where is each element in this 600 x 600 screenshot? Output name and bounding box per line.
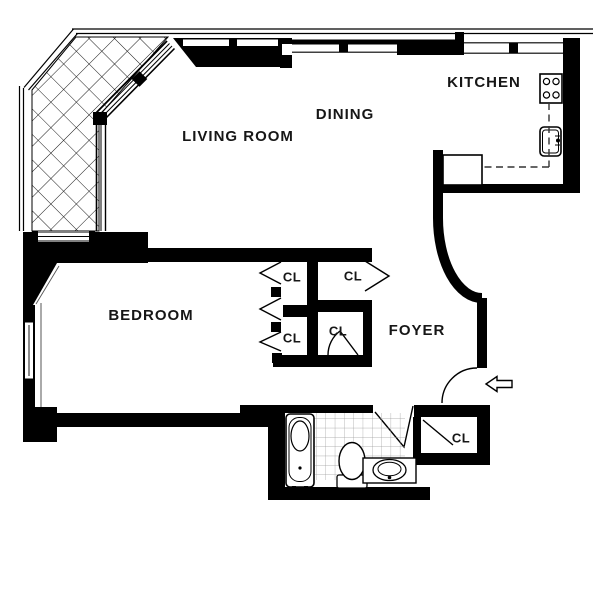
closet-door-leaf [423,420,453,445]
window-mullion-block [32,231,38,242]
closet-label: CL [452,430,470,445]
living-room-label: LIVING ROOM [182,128,294,145]
wall-foyer-curve [438,218,482,298]
window-mullion-block [89,231,95,242]
door-anchor-block [272,353,282,363]
kitchen-sink-icon [540,127,561,156]
wall-window-head [292,40,463,45]
kitchen-label: KITCHEN [447,74,521,91]
wall-bedroom-top [148,248,372,262]
door-anchor-block [271,322,281,332]
wall-bedroom-chamfer [23,263,57,305]
stove-icon [540,74,562,103]
floor-plan-canvas: LIVING ROOM DINING KITCHEN BEDROOM FOYER… [0,0,600,600]
wall-bath-left [268,405,285,500]
wall-right-kitchen [563,38,580,193]
window-slot [237,40,278,47]
closet-label: CL [329,323,347,338]
counter-dashed-outline [482,103,549,167]
wall-kitchen-left [433,150,443,218]
wall-top-left-end [282,38,292,44]
window-slot [183,40,229,47]
wall-stub [280,55,292,68]
wall-closet-mid-left [283,305,307,317]
terrace [32,37,175,231]
bifold-door-icon [260,262,281,284]
bathtub-icon [286,414,314,489]
wall-connector [240,405,270,427]
bifold-door-icon [260,298,281,320]
window-mullion-block [339,40,348,53]
entry-door-arc [442,368,477,403]
closet-label: CL [344,268,362,283]
refrigerator-counter-icon [443,155,482,185]
window-mullion-block [509,43,518,54]
wall-bath-top [285,405,373,413]
wall-block [455,32,464,55]
wall-closet-right [363,312,372,355]
wall-closet-bottom [273,355,372,367]
wall-bedroom-bottom [23,413,270,427]
bathroom-fixtures [286,413,416,489]
dining-label: DINING [316,106,375,123]
vanity-sink-icon [363,458,416,483]
bifold-door-icon [365,261,389,291]
wall-top-dining [397,44,455,55]
window-mullion-block [24,379,34,385]
floor-plan: LIVING ROOM DINING KITCHEN BEDROOM FOYER… [0,0,600,600]
bifold-door-icon [260,332,281,351]
closet-label: CL [283,330,301,345]
closet-label: CL [283,269,301,284]
entry-arrow-icon [486,377,512,392]
window-mullion-block [24,316,34,322]
foyer-label: FOYER [389,322,446,339]
wall-closet-spine [307,253,318,362]
wall-closet-mid-right [318,300,372,312]
bedroom-label: BEDROOM [108,307,193,324]
wall-entry-right [477,298,487,368]
wall-entry-closet-bottom [421,453,490,465]
door-anchor-block [271,287,281,297]
